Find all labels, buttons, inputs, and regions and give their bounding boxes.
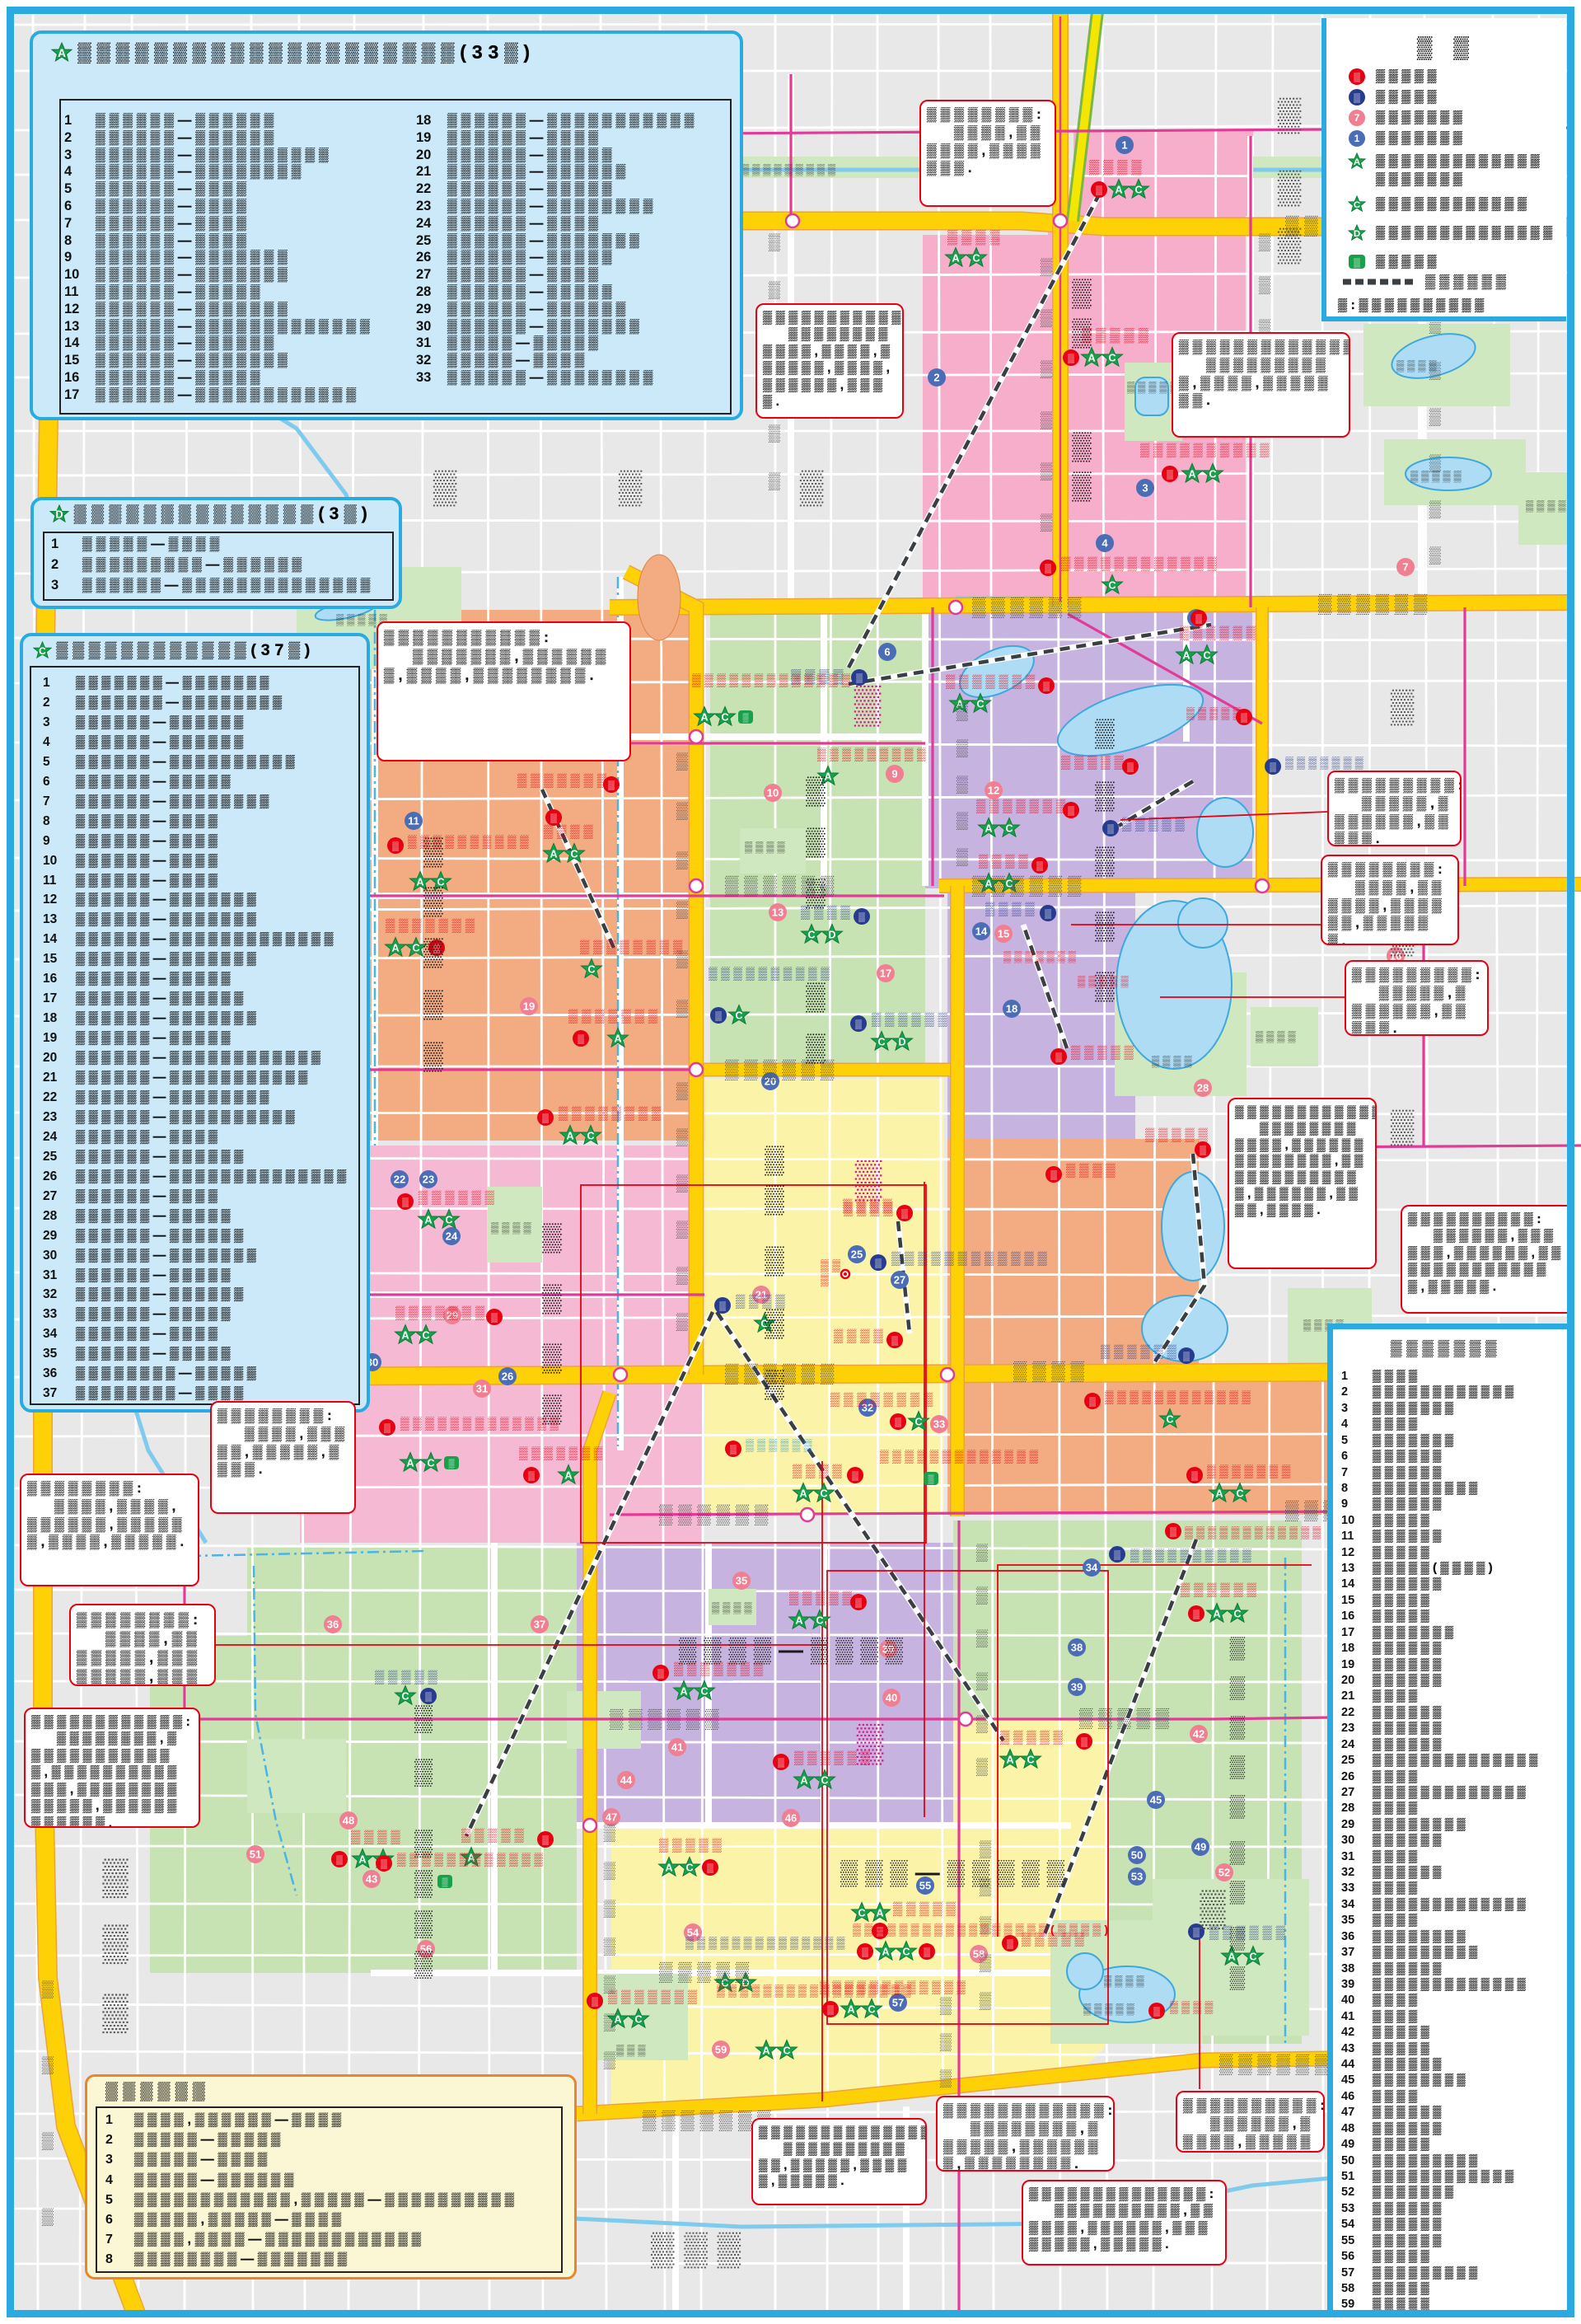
svg-text:▒: ▒ [827, 2004, 834, 2015]
svg-text:▒: ▒ [604, 2051, 616, 2069]
svg-text:▒: ▒ [1095, 910, 1115, 942]
svg-text:▒▒▒: ▒▒▒ [651, 2231, 751, 2269]
svg-text:▒: ▒ [891, 1335, 898, 1346]
svg-text:23: 23 [423, 1174, 434, 1186]
svg-text:▒: ▒ [676, 1267, 689, 1285]
svg-text:C: C [1005, 823, 1013, 835]
svg-text:▒: ▒ [102, 1857, 129, 1899]
svg-text:▒: ▒ [1068, 805, 1074, 816]
svg-text:▒: ▒ [676, 950, 689, 968]
svg-text:C: C [816, 1615, 823, 1627]
svg-text:▒: ▒ [1354, 72, 1360, 82]
svg-text:▒▒▒▒▒▒▒▒▒▒▒▒▒: ▒▒▒▒▒▒▒▒▒▒▒▒▒ [880, 1450, 1042, 1464]
svg-text:▒: ▒ [448, 1459, 455, 1469]
svg-text:6: 6 [884, 646, 890, 658]
svg-text:C: C [39, 645, 46, 657]
svg-text:▒▒▒▒▒: ▒▒▒▒▒ [1061, 755, 1128, 770]
svg-text:▒: ▒ [414, 1909, 433, 1938]
svg-text:▒▒▒▒▒▒▒: ▒▒▒▒▒▒▒ [568, 1009, 662, 1024]
svg-text:▒: ▒ [42, 2208, 54, 2226]
svg-text:▒▒▒▒: ▒▒▒▒ [1013, 1360, 1090, 1382]
svg-text:▒: ▒ [1095, 780, 1115, 812]
svg-text:A: A [58, 47, 66, 59]
svg-text:▒: ▒ [1055, 1052, 1062, 1062]
svg-text:▒▒▒▒▒: ▒▒▒▒▒ [1410, 470, 1465, 483]
svg-text:▒: ▒ [676, 752, 689, 771]
svg-text:37: 37 [534, 1619, 545, 1631]
svg-text:▒▒▒▒▒▒: ▒▒▒▒▒▒ [972, 874, 1087, 897]
svg-text:C: C [445, 1215, 452, 1226]
svg-text:22: 22 [394, 1174, 405, 1186]
svg-text:▒▒▒▒▒▒▒: ▒▒▒▒▒▒▒ [517, 773, 610, 788]
svg-text:▒: ▒ [857, 1721, 884, 1765]
svg-text:▒▒▒▒: ▒▒▒▒ [1152, 1055, 1195, 1068]
svg-text:▒: ▒ [423, 836, 443, 868]
svg-text:▒▒▒▒▒▒: ▒▒▒▒▒▒ [1181, 1582, 1261, 1597]
svg-text:▒: ▒ [381, 1858, 387, 1869]
svg-text:▒▒▒▒: ▒▒▒▒ [1396, 359, 1439, 372]
svg-text:38: 38 [1071, 1642, 1083, 1654]
svg-text:C: C [858, 1908, 865, 1919]
svg-text:▒: ▒ [1429, 500, 1442, 518]
svg-text:▒: ▒ [976, 1672, 989, 1690]
svg-text:▒▒▒▒▒: ▒▒▒▒▒ [789, 1591, 856, 1605]
svg-text:C: C [570, 849, 578, 860]
svg-text:A: A [1188, 469, 1195, 480]
svg-text:▒: ▒ [778, 1757, 784, 1768]
svg-text:▒: ▒ [765, 1244, 784, 1277]
svg-text:C: C [1134, 185, 1142, 196]
svg-text:▒▒▒: ▒▒▒ [616, 2044, 648, 2057]
svg-text:▒: ▒ [604, 1824, 616, 1842]
svg-text:▒: ▒ [542, 1113, 549, 1123]
svg-text:2: 2 [933, 372, 939, 384]
svg-text:C: C [821, 1775, 828, 1787]
svg-text:9: 9 [891, 768, 897, 780]
svg-text:33: 33 [933, 1418, 945, 1431]
svg-text:▒: ▒ [542, 1342, 562, 1374]
svg-text:▒: ▒ [604, 1937, 616, 1956]
svg-text:53: 53 [1131, 1871, 1143, 1883]
svg-text:26: 26 [502, 1371, 513, 1383]
svg-text:▒▒▒▒▒▒▒: ▒▒▒▒▒▒▒ [386, 918, 479, 933]
svg-text:▒: ▒ [1081, 1736, 1088, 1747]
svg-text:▒▒▒▒▒▒: ▒▒▒▒▒▒ [725, 874, 840, 897]
svg-text:▒: ▒ [1072, 316, 1092, 349]
svg-text:▒: ▒ [976, 1629, 989, 1647]
svg-text:▒▒▒▒: ▒▒▒▒ [1170, 2000, 1216, 2014]
svg-text:▒: ▒ [1230, 1839, 1246, 1865]
svg-text:▒▒: ▒▒ [821, 1258, 844, 1272]
svg-text:▒: ▒ [1429, 546, 1442, 565]
svg-text:▒: ▒ [1278, 96, 1302, 134]
svg-text:▒▒▒▒: ▒▒▒▒ [491, 1221, 534, 1235]
svg-text:▒: ▒ [742, 713, 749, 723]
svg-text:▒: ▒ [657, 1668, 664, 1679]
svg-text:3: 3 [1142, 482, 1148, 494]
svg-text:▒: ▒ [1095, 845, 1115, 877]
svg-text:A: A [1006, 1755, 1013, 1766]
svg-text:▒: ▒ [1041, 258, 1053, 276]
svg-text:▒▒▒▒: ▒▒▒▒ [712, 1601, 755, 1614]
svg-text:C: C [587, 964, 595, 976]
svg-text:▒: ▒ [1114, 1549, 1120, 1560]
svg-text:▒: ▒ [676, 1313, 689, 1331]
svg-text:57: 57 [892, 1997, 904, 2009]
svg-text:▒: ▒ [730, 1444, 737, 1455]
svg-text:▒: ▒ [769, 472, 781, 490]
svg-text:A: A [1088, 353, 1095, 364]
svg-text:▒: ▒ [858, 911, 865, 922]
svg-text:▒: ▒ [821, 1272, 832, 1286]
svg-text:C: C [1354, 200, 1360, 210]
svg-text:C: C [807, 930, 815, 941]
svg-text:▒: ▒ [1072, 430, 1092, 462]
svg-text:▒: ▒ [1354, 257, 1360, 268]
svg-text:▒: ▒ [1096, 185, 1102, 195]
svg-text:C: C [914, 1417, 922, 1428]
svg-text:C: C [976, 699, 984, 710]
svg-text:A: A [985, 823, 992, 835]
svg-text:D: D [1354, 229, 1360, 239]
svg-text:▒: ▒ [1043, 681, 1050, 691]
svg-text:D: D [828, 930, 835, 941]
svg-text:C: C [401, 1691, 409, 1703]
svg-text:C: C [1209, 469, 1216, 480]
svg-text:▒▒▒▒▒▒▒: ▒▒▒▒▒▒▒ [976, 799, 1069, 813]
svg-text:A: A [1115, 185, 1122, 196]
svg-text:24: 24 [446, 1230, 458, 1243]
svg-text:▒▒▒▒▒▒▒: ▒▒▒▒▒▒▒ [1003, 950, 1079, 963]
svg-text:▒▒▒▒▒▒▒: ▒▒▒▒▒▒▒ [608, 1989, 701, 2004]
svg-text:▒: ▒ [765, 1144, 784, 1176]
svg-text:12: 12 [988, 785, 999, 797]
svg-text:7: 7 [1354, 112, 1360, 124]
svg-text:▒: ▒ [676, 1174, 689, 1192]
svg-text:▒▒▒▒▒: ▒▒▒▒▒ [659, 1838, 726, 1853]
svg-text:42: 42 [1193, 1728, 1204, 1741]
svg-text:A: A [847, 2004, 854, 2016]
svg-text:▒▒▒▒: ▒▒▒▒ [1066, 1163, 1120, 1178]
svg-text:▒: ▒ [578, 1033, 584, 1044]
svg-text:31: 31 [476, 1383, 488, 1395]
svg-text:▒: ▒ [1354, 92, 1360, 103]
svg-text:▒▒▒▒▒▒▒▒▒▒: ▒▒▒▒▒▒▒▒▒▒ [1130, 1549, 1255, 1563]
svg-text:▒: ▒ [1259, 276, 1271, 294]
svg-text:▒▒▒▒▒▒: ▒▒▒▒▒▒ [1180, 626, 1260, 640]
svg-text:▒: ▒ [1095, 970, 1115, 1002]
svg-text:▒▒▒▒▒: ▒▒▒▒▒ [893, 1901, 960, 1916]
svg-text:45: 45 [1150, 1794, 1162, 1806]
svg-text:▒▒▒▒▒▒▒▒▒▒: ▒▒▒▒▒▒▒▒▒▒ [709, 967, 833, 981]
svg-text:25: 25 [851, 1249, 863, 1261]
svg-text:▒▒▒▒▒: ▒▒▒▒▒ [461, 1828, 528, 1843]
svg-text:▒: ▒ [423, 1040, 443, 1072]
svg-text:A: A [614, 1033, 621, 1045]
svg-text:▒: ▒ [719, 1300, 726, 1311]
svg-text:▒: ▒ [895, 1417, 901, 1427]
svg-text:A: A [952, 253, 959, 265]
svg-text:▒▒▒▒▒▒: ▒▒▒▒▒▒ [1101, 1344, 1181, 1359]
svg-text:C: C [1166, 1414, 1173, 1426]
svg-text:▒▒▒▒: ▒▒▒▒ [745, 841, 788, 854]
svg-text:51: 51 [250, 1848, 261, 1861]
svg-text:▒▒▒▒▒: ▒▒▒▒▒ [1083, 2003, 1138, 2016]
svg-text:▒▒▒▒▒▒▒▒: ▒▒▒▒▒▒▒▒ [580, 939, 686, 954]
svg-text:49: 49 [1195, 1841, 1206, 1853]
svg-text:▒: ▒ [924, 1947, 930, 1957]
svg-text:▒: ▒ [980, 1992, 992, 2010]
svg-text:A: A [824, 771, 831, 783]
svg-text:▒: ▒ [957, 848, 969, 866]
svg-text:▒▒▒▒▒▒▒▒▒▒▒▒▒: ▒▒▒▒▒▒▒▒▒▒▒▒▒ [692, 673, 854, 687]
svg-text:▒: ▒ [542, 1393, 562, 1425]
svg-text:C: C [1108, 353, 1116, 364]
svg-text:▒▒▒▒▒▒: ▒▒▒▒▒▒ [419, 1190, 498, 1205]
svg-text:▒: ▒ [980, 1878, 992, 1896]
svg-text:▒: ▒ [676, 1000, 689, 1018]
svg-text:▒▒▒▒▒▒▒: ▒▒▒▒▒▒▒ [1207, 1464, 1294, 1478]
svg-text:▒▒▒▒: ▒▒▒▒ [1526, 499, 1569, 513]
svg-text:▒▒▒▒: ▒▒▒▒ [793, 1464, 846, 1478]
svg-text:▒: ▒ [1259, 233, 1271, 251]
svg-text:▒: ▒ [1041, 513, 1053, 532]
svg-text:36: 36 [327, 1619, 339, 1631]
svg-text:▒▒▒▒▒: ▒▒▒▒▒ [1079, 1707, 1175, 1729]
svg-text:18: 18 [1006, 1003, 1017, 1015]
svg-text:▒: ▒ [1041, 309, 1053, 327]
svg-text:39: 39 [1071, 1681, 1083, 1694]
svg-text:▒: ▒ [42, 2132, 54, 2150]
svg-text:▒: ▒ [592, 1996, 598, 2007]
svg-text:▒▒▒▒▒▒: ▒▒▒▒▒▒ [872, 1012, 952, 1027]
svg-text:▒: ▒ [442, 1877, 448, 1887]
svg-text:47: 47 [606, 1811, 617, 1824]
svg-text:▒: ▒ [676, 901, 689, 919]
svg-text:▒▒▒▒: ▒▒▒▒ [544, 824, 597, 839]
svg-text:15: 15 [998, 928, 1009, 940]
svg-text:▒: ▒ [1041, 462, 1053, 480]
svg-text:▒: ▒ [676, 1221, 689, 1239]
svg-text:▒▒▒▒: ▒▒▒▒ [979, 854, 1032, 869]
svg-text:A: A [882, 1947, 889, 1958]
svg-text:D: D [55, 509, 63, 521]
svg-text:▒: ▒ [769, 281, 781, 299]
svg-text:▒: ▒ [976, 1715, 989, 1733]
svg-text:▒: ▒ [423, 885, 443, 917]
svg-text:▒▒▒▒: ▒▒▒▒ [843, 1198, 896, 1213]
svg-text:▒: ▒ [769, 424, 781, 443]
svg-text:▒: ▒ [957, 739, 969, 757]
svg-text:▒▒▒▒: ▒▒▒▒ [834, 1328, 887, 1343]
svg-text:▒: ▒ [336, 1854, 343, 1865]
svg-text:▒: ▒ [1391, 688, 1415, 726]
svg-text:▒: ▒ [608, 780, 615, 790]
svg-text:▒: ▒ [1068, 353, 1074, 363]
svg-text:▒▒▒▒: ▒▒▒▒ [1104, 1975, 1147, 1988]
svg-text:▒: ▒ [414, 1828, 433, 1858]
svg-text:▒: ▒ [1193, 1609, 1200, 1619]
svg-text:A: A [795, 1615, 802, 1627]
svg-text:▒: ▒ [715, 1010, 722, 1021]
svg-text:▒: ▒ [1095, 717, 1115, 749]
svg-text:▒: ▒ [1230, 1714, 1246, 1740]
svg-text:▒: ▒ [414, 1703, 433, 1733]
svg-text:▒: ▒ [1230, 1965, 1246, 1990]
svg-text:▒: ▒ [102, 1992, 129, 2034]
svg-text:▒: ▒ [1170, 1526, 1176, 1537]
svg-text:▒: ▒ [1200, 1888, 1226, 1930]
svg-text:43: 43 [366, 1873, 377, 1886]
svg-text:▒: ▒ [855, 1597, 862, 1608]
svg-text:▒: ▒ [414, 1949, 433, 1979]
svg-text:▒: ▒ [980, 1954, 992, 1972]
svg-text:▒: ▒ [1167, 469, 1173, 480]
svg-text:▒: ▒ [976, 1586, 989, 1605]
svg-text:▒: ▒ [423, 988, 443, 1020]
svg-text:▒: ▒ [676, 802, 689, 820]
svg-text:A: A [424, 1215, 432, 1226]
svg-text:▒▒▒▒—▒▒▒▒: ▒▒▒▒—▒▒▒▒ [679, 1637, 910, 1665]
svg-text:▒▒▒▒▒▒: ▒▒▒▒▒▒ [746, 1438, 816, 1452]
svg-text:▒: ▒ [604, 1900, 616, 1918]
svg-text:▒: ▒ [604, 2013, 616, 2031]
svg-text:C: C [877, 1037, 885, 1048]
svg-text:▒: ▒ [433, 469, 457, 507]
svg-text:▒: ▒ [1241, 712, 1247, 723]
svg-text:10: 10 [767, 787, 779, 799]
svg-text:▒: ▒ [1230, 1925, 1246, 1951]
svg-text:▒▒▒▒: ▒▒▒▒ [985, 902, 1039, 916]
svg-text:▒▒▒▒▒▒: ▒▒▒▒▒▒ [659, 1503, 774, 1525]
svg-text:▒: ▒ [604, 1862, 616, 1880]
svg-text:▒▒▒▒▒▒▒▒: ▒▒▒▒▒▒▒▒ [559, 1106, 665, 1121]
svg-text:C: C [412, 943, 419, 954]
svg-text:▒: ▒ [1107, 823, 1114, 834]
svg-text:▒▒▒▒▒: ▒▒▒▒▒ [1186, 706, 1245, 720]
svg-text:▒: ▒ [528, 1470, 535, 1481]
svg-text:C: C [422, 1330, 429, 1342]
svg-text:▒: ▒ [102, 1923, 129, 1965]
svg-text:▒: ▒ [1045, 563, 1051, 574]
svg-text:11: 11 [408, 815, 419, 827]
svg-text:▒: ▒ [855, 1019, 862, 1029]
svg-text:48: 48 [343, 1815, 354, 1827]
svg-text:A: A [358, 1854, 366, 1866]
svg-text:▒: ▒ [852, 1470, 858, 1481]
svg-text:▒: ▒ [980, 1840, 992, 1858]
svg-text:C: C [783, 2045, 790, 2057]
svg-text:▒▒▒▒▒: ▒▒▒▒▒ [1122, 817, 1189, 832]
svg-text:C: C [735, 1010, 742, 1022]
svg-text:▒: ▒ [1191, 1470, 1198, 1481]
svg-text:▒: ▒ [976, 1758, 989, 1776]
svg-text:A: A [391, 943, 399, 954]
svg-text:▒▒▒▒: ▒▒▒▒ [1089, 159, 1146, 176]
svg-text:▒▒▒▒▒▒▒▒: ▒▒▒▒▒▒▒▒ [830, 1392, 937, 1407]
svg-text:▒: ▒ [769, 233, 781, 251]
svg-text:C: C [1249, 1952, 1256, 1963]
svg-text:A: A [665, 1862, 672, 1874]
svg-text:▒: ▒ [1153, 2006, 1160, 2017]
svg-text:28: 28 [1197, 1082, 1209, 1094]
svg-text:A: A [1228, 1952, 1235, 1963]
svg-text:▒: ▒ [1072, 277, 1092, 309]
svg-text:▒: ▒ [542, 1221, 562, 1253]
svg-text:A: A [762, 2045, 769, 2057]
svg-text:▒▒▒▒▒▒▒▒▒▒▒▒: ▒▒▒▒▒▒▒▒▒▒▒▒ [1185, 1525, 1324, 1539]
svg-text:▒: ▒ [542, 1282, 562, 1314]
svg-text:▒: ▒ [1007, 1938, 1013, 1949]
svg-text:C: C [700, 1686, 708, 1698]
svg-text:▒▒▒▒▒▒: ▒▒▒▒▒▒ [1318, 593, 1433, 615]
svg-text:27: 27 [894, 1274, 905, 1286]
svg-text:▒: ▒ [550, 813, 557, 823]
svg-text:▒▒▒▒: ▒▒▒▒ [947, 229, 1004, 246]
svg-text:▒▒▒▒: ▒▒▒▒ [351, 1830, 405, 1844]
svg-text:▒: ▒ [1270, 761, 1276, 772]
svg-text:▒: ▒ [1391, 1108, 1415, 1146]
svg-text:▒: ▒ [957, 812, 969, 830]
svg-text:▒: ▒ [42, 1980, 54, 1998]
svg-text:▒: ▒ [1127, 761, 1134, 772]
svg-text:A: A [876, 1908, 883, 1919]
svg-text:▒: ▒ [957, 703, 969, 721]
svg-text:14: 14 [975, 925, 988, 938]
svg-text:▒: ▒ [604, 1975, 616, 1994]
svg-text:▒▒▒▒▒▒▒▒▒▒▒▒: ▒▒▒▒▒▒▒▒▒▒▒▒ [891, 1251, 1051, 1266]
svg-text:▒: ▒ [765, 1183, 784, 1216]
svg-text:▒: ▒ [414, 1757, 433, 1787]
svg-text:▒: ▒ [765, 1307, 784, 1339]
svg-text:A: A [564, 1470, 572, 1482]
svg-text:▒: ▒ [542, 1834, 549, 1845]
svg-text:59: 59 [715, 2044, 727, 2056]
svg-text:▒: ▒ [402, 1197, 409, 1207]
svg-text:▒: ▒ [806, 826, 826, 858]
svg-text:▒: ▒ [1230, 1754, 1246, 1779]
svg-text:▒: ▒ [806, 981, 826, 1013]
svg-text:▒: ▒ [1050, 1169, 1057, 1180]
svg-text:▒: ▒ [1429, 408, 1442, 426]
svg-text:▒: ▒ [491, 1312, 498, 1323]
svg-text:A: A [680, 1686, 687, 1698]
svg-text:C: C [427, 1458, 434, 1469]
svg-text:▒: ▒ [423, 936, 443, 968]
svg-text:▒: ▒ [676, 851, 689, 869]
svg-text:▒: ▒ [875, 1258, 882, 1268]
svg-text:▒: ▒ [806, 775, 826, 807]
svg-text:7: 7 [1402, 561, 1408, 574]
svg-text:D: D [898, 1037, 905, 1048]
svg-text:A: A [1354, 157, 1360, 167]
svg-text:13: 13 [772, 907, 783, 919]
svg-text:▒▒▒▒▒▒▒▒▒▒▒▒▒▒▒▒▒: ▒▒▒▒▒▒▒▒▒▒▒▒▒▒▒▒▒ [717, 1984, 914, 1998]
svg-text:▒▒▒▒▒: ▒▒▒▒▒ [1071, 1045, 1138, 1060]
svg-text:▒: ▒ [854, 682, 882, 727]
svg-text:C: C [902, 1947, 910, 1958]
svg-text:▒▒▒▒▒▒▒▒▒: ▒▒▒▒▒▒▒▒▒ [741, 163, 839, 176]
svg-text:▒▒▒—▒▒▒▒▒: ▒▒▒—▒▒▒▒▒ [840, 1859, 1072, 1887]
svg-text:▒▒▒▒▒▒: ▒▒▒▒▒▒ [725, 1058, 840, 1080]
svg-text:▒: ▒ [676, 1082, 689, 1100]
svg-text:▒: ▒ [976, 1544, 989, 1562]
svg-text:▒▒▒▒▒▒▒▒▒: ▒▒▒▒▒▒▒▒▒ [817, 747, 929, 761]
svg-text:▒▒▒▒: ▒▒▒▒ [1256, 1030, 1298, 1043]
svg-text:▒: ▒ [1278, 169, 1302, 207]
svg-text:C: C [972, 253, 980, 265]
svg-text:C: C [1236, 1488, 1243, 1500]
